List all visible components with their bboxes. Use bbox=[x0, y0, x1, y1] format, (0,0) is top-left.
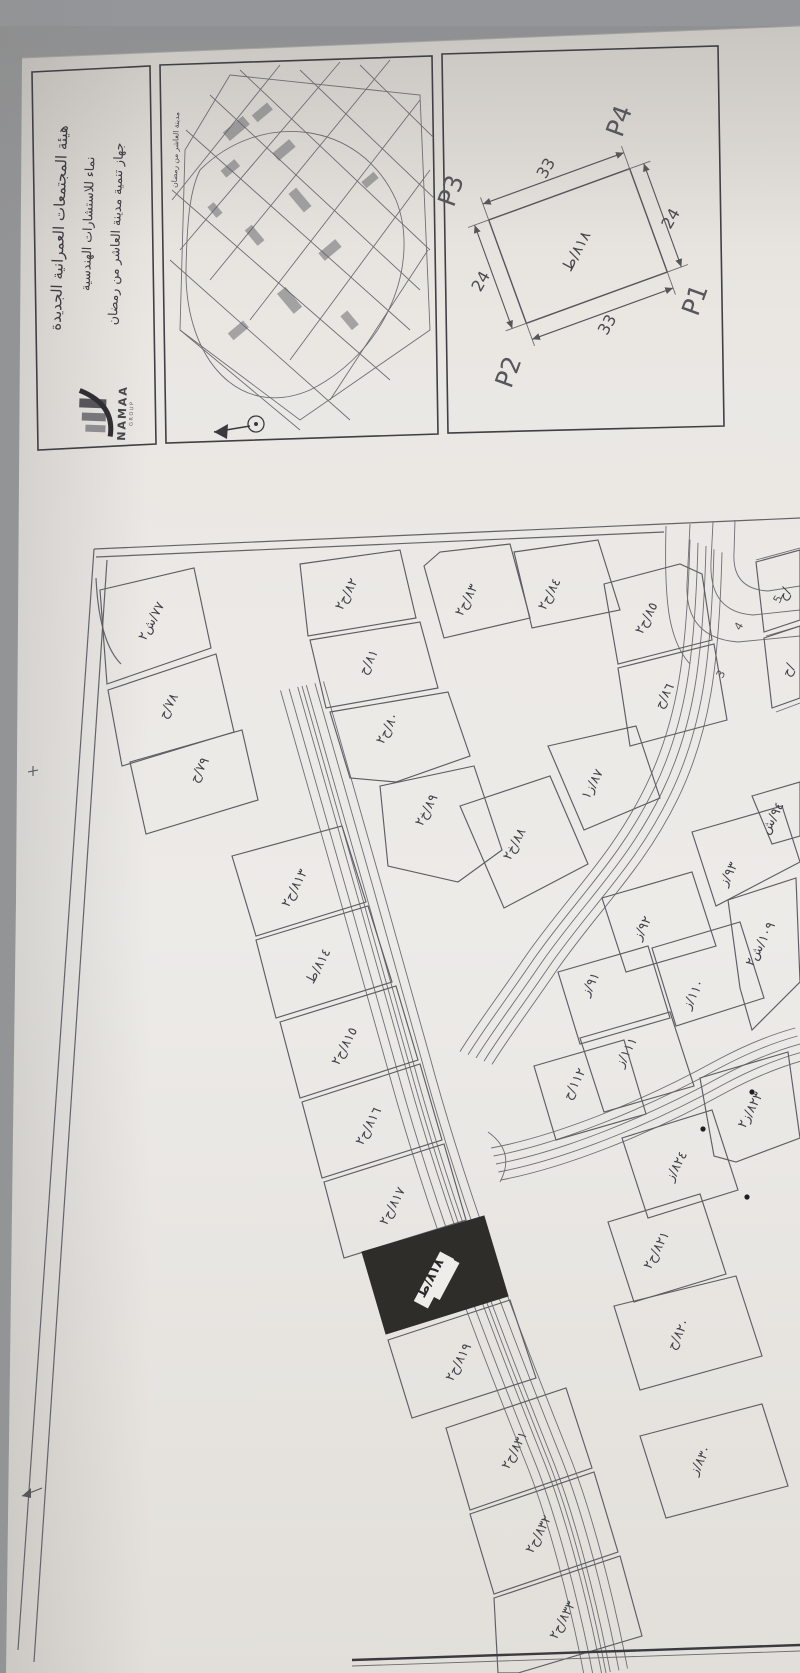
logo-bar-icon bbox=[82, 413, 106, 422]
plan-sheet: هيئة المجتمعات العمرانية الجديدة نماء لل… bbox=[0, 0, 800, 1673]
document-photo: هيئة المجتمعات العمرانية الجديدة نماء لل… bbox=[0, 0, 800, 1673]
logo-bar-icon bbox=[85, 425, 105, 433]
shading-left bbox=[0, 0, 150, 1673]
logo-sub-text: GROUP bbox=[129, 400, 136, 426]
logo-brand-text: NAMAA bbox=[115, 385, 130, 441]
